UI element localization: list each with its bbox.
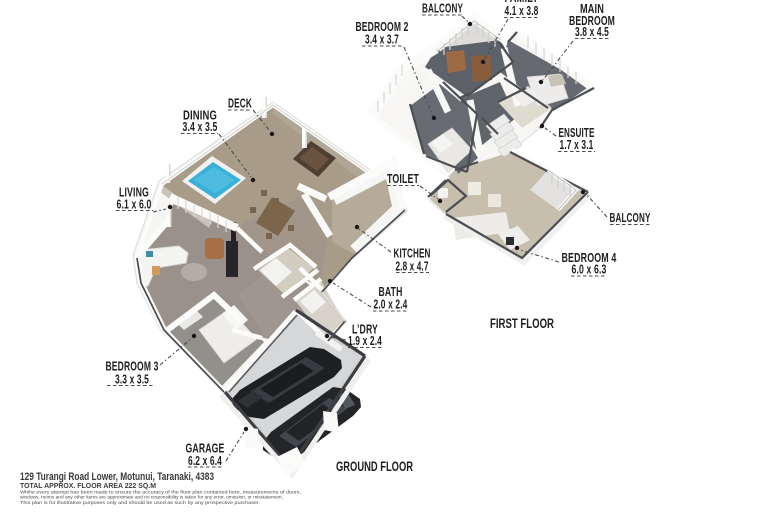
svg-text:3.3 x 3.5: 3.3 x 3.5 bbox=[115, 373, 149, 387]
svg-text:Whilst every attempt has been: Whilst every attempt has been made to en… bbox=[20, 490, 301, 496]
svg-text:BALCONY: BALCONY bbox=[422, 2, 463, 16]
svg-text:3.8 x 4.5: 3.8 x 4.5 bbox=[575, 25, 609, 39]
svg-text:2.8 x 4.7: 2.8 x 4.7 bbox=[396, 260, 429, 274]
svg-text:6.0 x 6.3: 6.0 x 6.3 bbox=[572, 263, 607, 277]
svg-text:BEDROOM 3: BEDROOM 3 bbox=[106, 360, 159, 374]
svg-text:DECK: DECK bbox=[228, 97, 252, 111]
svg-text:KITCHEN: KITCHEN bbox=[394, 247, 431, 261]
svg-text:This plan is for illustrative: This plan is for illustrative purposes o… bbox=[20, 500, 260, 506]
svg-text:3.4 x 3.5: 3.4 x 3.5 bbox=[183, 120, 218, 134]
svg-text:windows, rooms and any other i: windows, rooms and any other items are a… bbox=[20, 495, 283, 501]
svg-text:2.0 x 2.4: 2.0 x 2.4 bbox=[374, 298, 408, 312]
svg-text:TOTAL APPROX. FLOOR AREA 222 S: TOTAL APPROX. FLOOR AREA 222 SQ.M bbox=[20, 481, 156, 490]
svg-text:1.7 x 3.1: 1.7 x 3.1 bbox=[560, 138, 594, 152]
svg-text:TOILET: TOILET bbox=[387, 172, 419, 186]
svg-text:6.2 x 6.4: 6.2 x 6.4 bbox=[188, 454, 222, 468]
svg-text:BALCONY: BALCONY bbox=[610, 211, 651, 225]
svg-text:6.1 x 6.0: 6.1 x 6.0 bbox=[117, 198, 152, 212]
svg-text:1.9 x 2.4: 1.9 x 2.4 bbox=[348, 334, 382, 348]
svg-text:FIRST FLOOR: FIRST FLOOR bbox=[490, 316, 554, 331]
svg-text:4.1 x 3.8: 4.1 x 3.8 bbox=[505, 4, 539, 18]
svg-text:GROUND FLOOR: GROUND FLOOR bbox=[336, 459, 413, 474]
svg-text:3.4 x 3.7: 3.4 x 3.7 bbox=[365, 33, 399, 47]
